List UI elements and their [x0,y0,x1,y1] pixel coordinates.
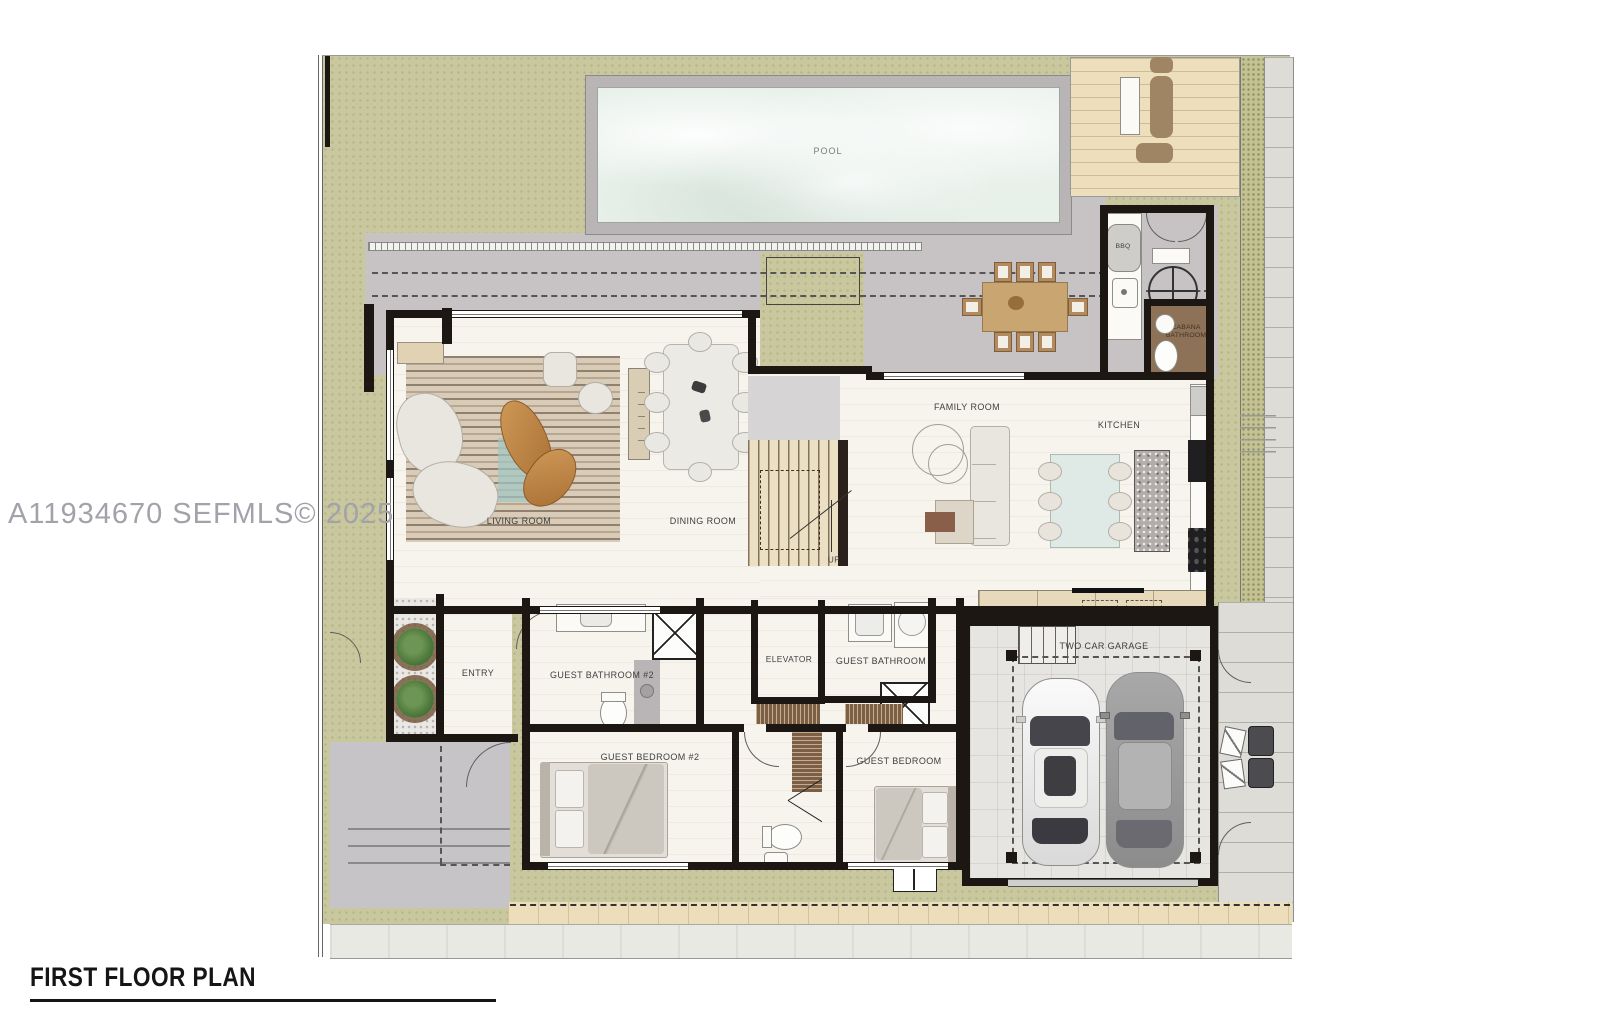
mid-bath-toilet-tank [762,826,772,848]
patio-chair [1038,262,1056,282]
refrigerator [1188,440,1207,482]
side-hedge [1240,57,1266,602]
wall-midbath-right [836,732,843,868]
wall-right-upper [1206,372,1214,614]
kitchen-stool [1108,522,1132,541]
elevator-label: ELEVATOR [766,655,812,665]
door-gap-2 [846,724,868,732]
patio-chair [1068,298,1088,316]
patio-chair [994,262,1012,282]
window-bedroom2-bottom [548,863,688,869]
dining-chair [644,352,670,373]
patio-chair [994,332,1012,352]
guest-bed-2-headboard [540,762,550,856]
bbq-label: BBQ [1116,243,1131,251]
car-gray-roof [1118,742,1172,810]
dining-centerpiece-2 [699,409,711,423]
bath2-drain [640,684,654,698]
deck-side-table [1120,77,1140,135]
garage-label: TWO CAR GARAGE [1059,641,1148,651]
mls-watermark: A11934670 SEFMLS© 2025 [8,498,394,531]
wall-elevator-bottom [751,697,825,704]
guest-bed-2-pillow [555,770,584,808]
up-arrow-stem [831,500,832,552]
bath2-toilet-tank [601,692,626,702]
dining-chair [644,392,670,413]
wall-bed-left [522,598,530,870]
wall-guestbath-right [928,598,936,702]
floor-plan-page: POOL LIVING ROOM [0,0,1600,1035]
car-white-windshield [1030,716,1090,746]
patio-chair [962,298,982,316]
wall-outdoor-right [1206,205,1214,378]
cabana-toilet [1154,340,1178,372]
car-gray-rear-glass [1116,820,1172,848]
planter-outline [766,257,860,305]
wall-court-left [386,594,394,742]
kitchen-stool [1108,462,1132,481]
guest-bed-2-pillow [555,810,584,848]
patio-edge-band [368,242,922,251]
dining-chair [644,432,670,453]
dining-chair [688,332,712,352]
garage-door [1008,879,1198,887]
kitchen-sink-bar [1072,588,1144,593]
car-white-mirror-l [1016,716,1026,723]
driveway-step-1 [348,828,510,830]
outdoor-sink-drain [1121,289,1127,295]
lounge-chair-1 [1150,57,1173,73]
guest-bed-blanket [876,788,922,860]
courtyard-plant-1 [396,628,434,666]
fence-segment-top-left [325,55,330,147]
window-living-top [452,311,742,317]
wall-garage-top [962,614,1218,626]
kitchen-stool [1108,492,1132,511]
wall-entry-bottom [386,734,518,742]
window-living-left-1 [387,350,393,460]
car-gray-windshield [1114,712,1174,740]
lounge-chair-3 [1136,143,1173,163]
mid-bath-toilet [768,824,802,850]
driveway-dashed-line-2 [440,864,510,866]
cooktop [1188,528,1207,572]
wall-entry-left [436,594,444,742]
wall-bath2-right [696,598,704,728]
living-room-label: LIVING ROOM [487,516,551,526]
kitchen-label: KITCHEN [1098,420,1140,430]
car-gray-mirror-l [1100,712,1110,719]
wall-cabana-left [1144,299,1151,378]
page-title: FIRST FLOOR PLAN [30,962,256,993]
wall-garage-left [962,614,970,886]
patio-chair [1038,332,1056,352]
garage-dash-corner [1190,852,1201,863]
garage-dash-corner [1006,650,1017,661]
window-living-bottom [540,607,660,613]
guest-bed-pillow [922,792,948,824]
wall-midbath-left [732,732,739,868]
window-bedroom-bottom [848,863,948,869]
dining-room-label: DINING ROOM [670,516,736,526]
wall-stairs-east [748,310,756,374]
car-gray-mirror-r [1180,712,1190,719]
wall-jog [748,366,872,374]
bath2-shower [652,606,698,660]
sidewalk [330,924,1292,959]
kitchen-stool [1038,522,1062,541]
family-sofa-cushions [972,428,996,542]
trash-bin-dark-1 [1248,726,1274,756]
guest-bathroom-label: GUEST BATHROOM [836,656,926,666]
lounge-chair-2 [1150,76,1173,138]
ottoman-round [578,382,613,414]
rear-double-door [893,866,937,892]
garage-dash-corner [1006,852,1017,863]
wall-outdoor-top [1100,205,1214,213]
pool-label: POOL [813,146,842,156]
title-underline [30,999,496,1002]
up-label: UP [828,555,840,564]
rear-double-door-split [913,866,915,890]
wall-guestbath-bottom [825,696,936,703]
courtyard-plant-2 [396,680,434,718]
patio-chair [1016,262,1034,282]
driveway-dashed-line [440,746,442,864]
stair-landing [748,376,840,440]
guest-bedroom-2-label: GUEST BEDROOM #2 [601,752,700,762]
patio-dining-table [982,282,1068,332]
wall-elevator-right [818,600,825,704]
side-steps [1240,415,1276,463]
site-line-top [322,55,1290,56]
patio-chair [1016,332,1034,352]
wall-cabana-top [1144,299,1214,306]
family-plant-icon-2 [928,444,968,484]
kitchen-stool [1038,462,1062,481]
door-gap-1 [744,724,766,732]
shower-valve-panel [1152,248,1190,264]
garage-dash-corner [1190,650,1201,661]
property-line-bottom [510,904,1290,906]
family-room-label: FAMILY ROOM [934,402,1000,412]
hall-closet-2 [792,732,822,792]
cabana-sink [1155,314,1175,334]
wall-garage-right [1210,614,1218,886]
car-white-sunroof [1044,756,1076,796]
entry-label: ENTRY [462,668,494,678]
dining-chair [688,462,712,482]
planter-box [397,342,444,364]
driveway-step-2 [348,845,510,847]
kitchen-island [1134,450,1170,552]
dining-table [663,344,739,470]
recycle-bin-white-2 [1220,759,1246,790]
ottoman-square [543,352,577,387]
wall-stub-left-patio [364,304,374,392]
car-white-rear-glass [1032,818,1088,844]
family-tray [925,512,955,532]
guest-bathroom-2-label: GUEST BATHROOM #2 [550,670,654,680]
guest-bed-pillow [922,826,948,858]
wall-elevator-left [751,600,758,704]
wall-main-bottom [386,606,1218,614]
kitchen-stool [1038,492,1062,511]
trash-bin-dark-2 [1248,758,1274,788]
patio-table-decor [1008,296,1024,310]
wall-row-divider [522,724,964,732]
stair-side-wall [838,440,848,566]
guest-bed-2-blanket [588,764,664,854]
wall-outdoor-left [1100,205,1108,378]
window-family-top [884,373,1024,379]
